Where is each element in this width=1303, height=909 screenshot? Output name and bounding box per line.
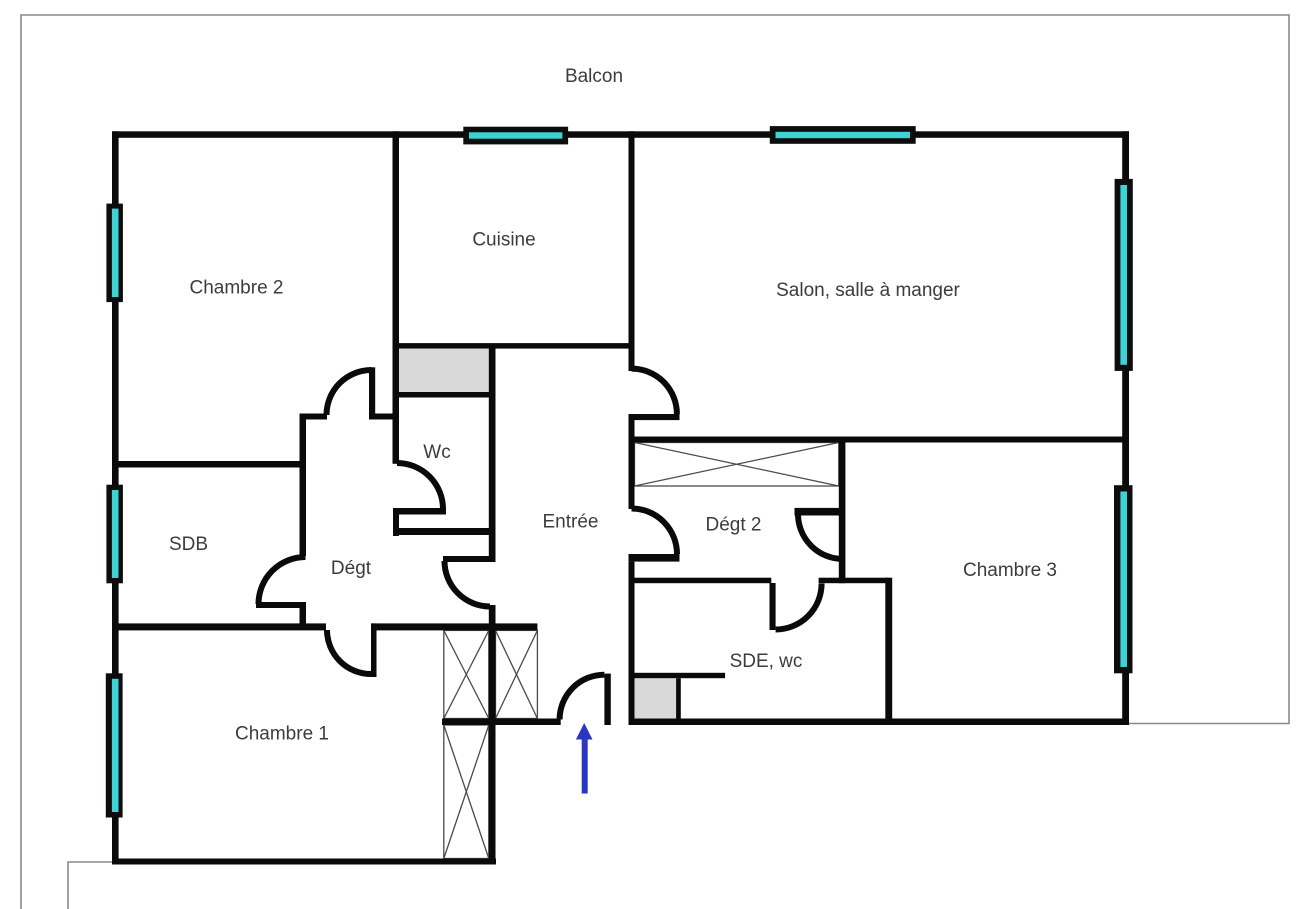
svg-text:Dégt: Dégt (331, 558, 372, 579)
svg-text:Balcon: Balcon (565, 66, 623, 87)
svg-text:Cuisine: Cuisine (472, 230, 535, 251)
svg-text:SDE, wc: SDE, wc (730, 651, 803, 672)
svg-text:Dégt 2: Dégt 2 (706, 515, 762, 536)
svg-text:Chambre 2: Chambre 2 (190, 278, 284, 299)
svg-text:Wc: Wc (423, 442, 450, 463)
svg-text:Chambre 3: Chambre 3 (963, 560, 1057, 581)
svg-text:Chambre 1: Chambre 1 (235, 724, 329, 745)
svg-text:SDB: SDB (169, 534, 208, 555)
svg-text:Entrée: Entrée (543, 512, 599, 533)
svg-text:Salon, salle à manger: Salon, salle à manger (776, 280, 960, 301)
